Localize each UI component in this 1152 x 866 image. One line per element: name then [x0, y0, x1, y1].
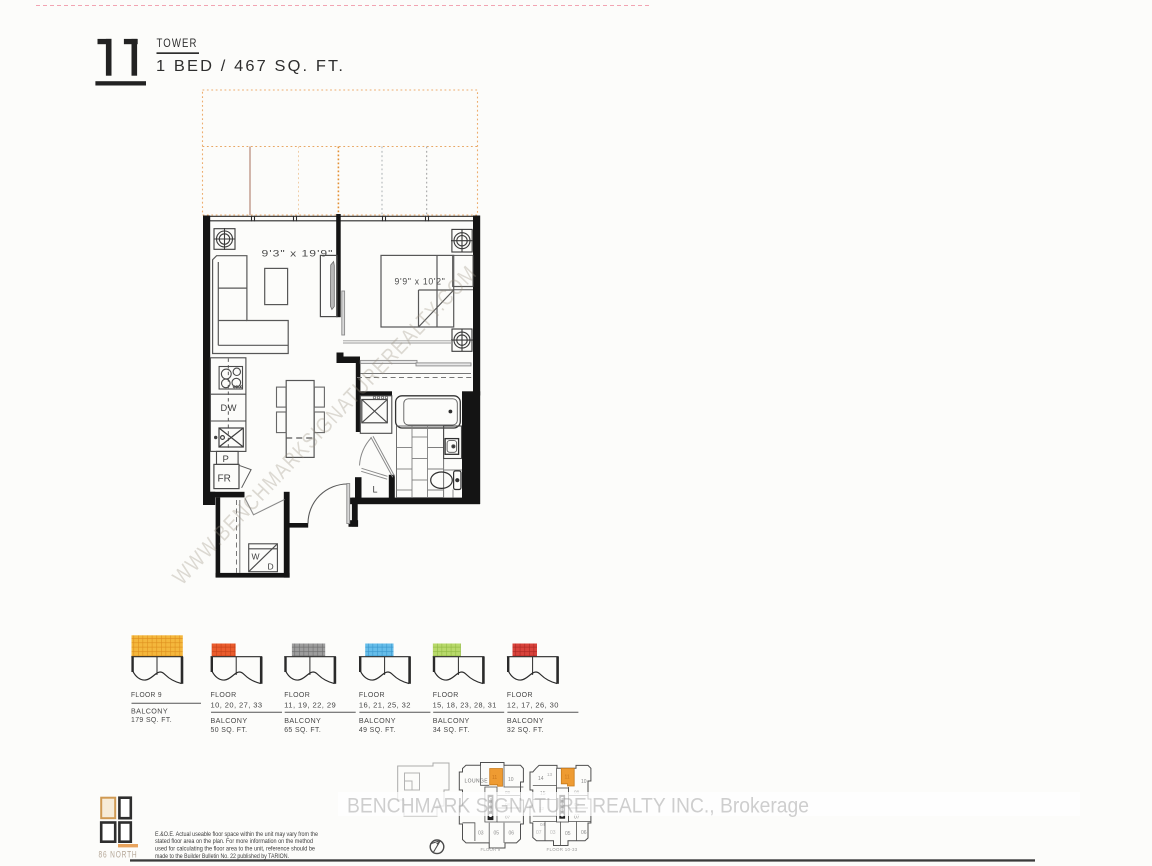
svg-text:03: 03 [550, 830, 556, 836]
svg-text:FLOOR: FLOOR [359, 690, 385, 699]
svg-text:04: 04 [540, 822, 546, 827]
svg-text:FLOOR: FLOOR [507, 690, 533, 699]
svg-text:14: 14 [538, 776, 544, 782]
svg-text:BALCONY: BALCONY [211, 716, 248, 725]
svg-text:BALCONY: BALCONY [433, 716, 470, 725]
svg-text:07: 07 [536, 830, 542, 836]
svg-text:BALCONY: BALCONY [284, 716, 321, 725]
svg-text:9'3" x 19'9": 9'3" x 19'9" [262, 249, 334, 260]
svg-text:9'9" x 10'2": 9'9" x 10'2" [395, 277, 446, 288]
svg-text:D: D [268, 562, 274, 572]
svg-text:stated floor area on the plan.: stated floor area on the plan. For more … [155, 838, 313, 845]
svg-text:179 SQ. FT.: 179 SQ. FT. [131, 715, 172, 724]
svg-text:made to the Builder Bulletin N: made to the Builder Bulletin No. 22 publ… [155, 853, 289, 860]
svg-text:05: 05 [565, 831, 571, 837]
svg-text:FR: FR [218, 474, 231, 485]
svg-text:P: P [223, 454, 229, 465]
svg-text:10, 20, 27, 33: 10, 20, 27, 33 [211, 701, 263, 710]
svg-text:32 SQ. FT.: 32 SQ. FT. [507, 725, 544, 734]
svg-text:FLOOR: FLOOR [433, 690, 459, 699]
svg-text:34 SQ. FT.: 34 SQ. FT. [433, 725, 470, 734]
svg-text:03: 03 [478, 831, 484, 837]
svg-text:L: L [373, 485, 378, 495]
svg-text:E.&O.E. Actual useable floor s: E.&O.E. Actual useable floor space withi… [155, 831, 318, 838]
svg-text:FLOOR 9: FLOOR 9 [131, 690, 162, 699]
svg-text:06: 06 [581, 830, 587, 836]
svg-text:15, 18, 23, 28, 31: 15, 18, 23, 28, 31 [433, 701, 497, 710]
svg-text:65 SQ. FT.: 65 SQ. FT. [284, 725, 321, 734]
svg-text:BALCONY: BALCONY [507, 716, 544, 725]
svg-text:11, 19, 22, 29: 11, 19, 22, 29 [284, 701, 336, 710]
svg-text:11: 11 [492, 775, 497, 781]
svg-text:BENCHMARK SIGNATURE REALTY INC: BENCHMARK SIGNATURE REALTY INC., Brokera… [347, 795, 809, 818]
svg-text:BALCONY: BALCONY [359, 716, 396, 725]
svg-text:16, 21, 25, 32: 16, 21, 25, 32 [359, 701, 411, 710]
svg-text:FLOOR: FLOOR [284, 690, 310, 699]
svg-text:10: 10 [581, 779, 587, 785]
svg-text:W: W [252, 552, 260, 562]
svg-text:06: 06 [509, 831, 515, 837]
svg-text:86 NORTH: 86 NORTH [99, 850, 138, 861]
svg-text:13: 13 [547, 772, 553, 777]
svg-text:50 SQ. FT.: 50 SQ. FT. [211, 725, 248, 734]
svg-text:LOUNGE: LOUNGE [465, 779, 489, 785]
svg-text:DW: DW [221, 403, 238, 413]
svg-text:FLOOR: FLOOR [211, 690, 237, 699]
svg-text:TOWER: TOWER [157, 36, 198, 50]
svg-text:used for calculating the floor: used for calculating the floor area to t… [155, 846, 315, 853]
svg-text:05: 05 [494, 831, 500, 837]
svg-text:49 SQ. FT.: 49 SQ. FT. [359, 725, 396, 734]
svg-text:FLOOR 9: FLOOR 9 [481, 847, 501, 853]
svg-text:12, 17, 26, 30: 12, 17, 26, 30 [507, 701, 559, 710]
svg-text:11: 11 [565, 775, 570, 781]
svg-text:FLOOR 10-33: FLOOR 10-33 [547, 847, 578, 853]
svg-text:10: 10 [508, 777, 514, 783]
svg-text:1 BED / 467 SQ. FT.: 1 BED / 467 SQ. FT. [156, 58, 345, 75]
